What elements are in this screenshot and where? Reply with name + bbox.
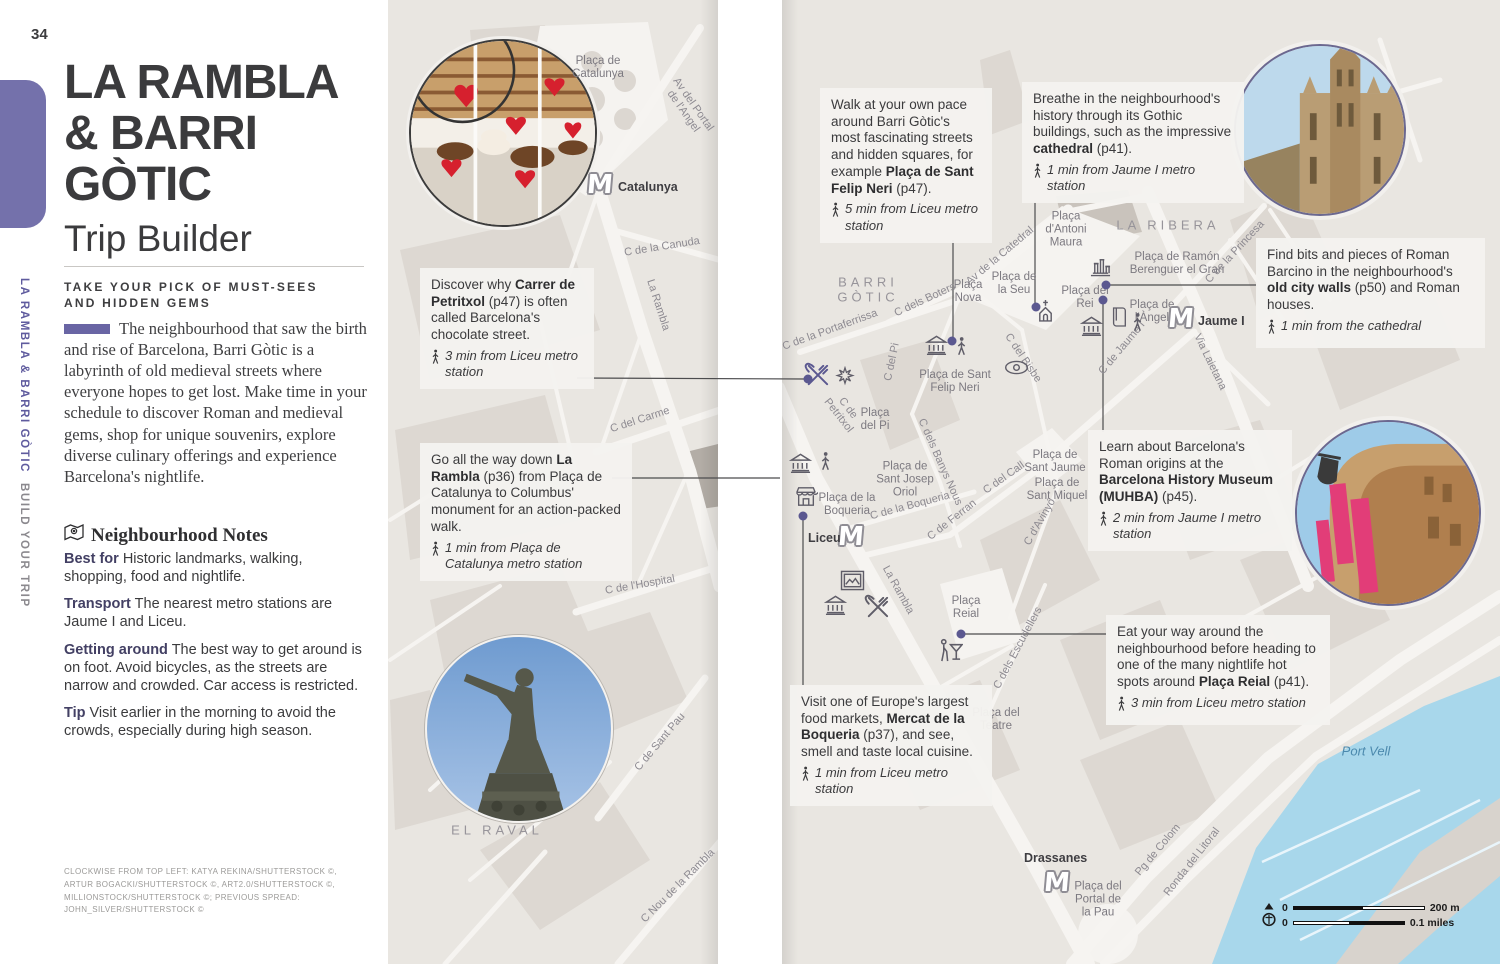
scale-metric-label: 200 m xyxy=(1430,902,1460,914)
museum-icon xyxy=(789,452,812,478)
museum-icon xyxy=(1080,315,1103,341)
note-text: Visit earlier in the morning to avoid th… xyxy=(64,705,336,739)
metro-station-label: Jaume I xyxy=(1198,314,1245,328)
walking-person-icon xyxy=(1033,162,1042,183)
walking-person-icon xyxy=(1117,695,1126,716)
walk-time-note: 3 min from Liceu metro station xyxy=(431,348,583,380)
map-label-place: Plaça de Catalunya xyxy=(572,55,624,81)
photo-credits: Clockwise from top left: Katya Rekina/Sh… xyxy=(64,866,364,917)
walking-person-icon xyxy=(431,348,440,369)
map-label-place: Plaça de la Boqueria xyxy=(819,492,876,518)
metro-logo-drassanes: M xyxy=(1043,870,1071,896)
walker-icon xyxy=(820,451,831,477)
frame-icon xyxy=(840,570,865,596)
callout-boqueria: Visit one of Europe's largest food marke… xyxy=(790,685,992,806)
map-journal-icon xyxy=(64,524,84,547)
scale-imperial-label: 0.1 miles xyxy=(1410,917,1454,929)
callout-placa-reial: Eat your way around the neighbourhood be… xyxy=(1106,615,1330,725)
callout-cathedral: Breathe in the neighbourhood's history t… xyxy=(1022,82,1244,203)
columns-icon xyxy=(1088,256,1113,282)
map-label-place: Plaça d'Antoni Maura xyxy=(1045,211,1086,250)
walker-icon xyxy=(956,336,967,362)
leader-dot xyxy=(1102,281,1111,290)
callout-text: Find bits and pieces of Roman Barcino in… xyxy=(1267,247,1474,314)
map-label-water: Port Vell xyxy=(1342,745,1391,760)
museum-icon xyxy=(925,334,948,360)
callout-text: Walk at your own pace around Barri Gòtic… xyxy=(831,97,981,197)
callout-felip-neri: Walk at your own pace around Barri Gòtic… xyxy=(820,88,992,243)
walking-person-icon xyxy=(831,201,840,222)
spine-vertical-title: LA RAMBLA & BARRI GÒTICBUILD YOUR TRIP xyxy=(18,278,30,608)
callout-la-rambla: Go all the way down La Rambla (p36) from… xyxy=(420,443,632,581)
walk-time-note: 5 min from Liceu metro station xyxy=(831,201,981,233)
spine-subtitle: BUILD YOUR TRIP xyxy=(18,483,30,608)
callout-old-city-walls: Find bits and pieces of Roman Barcino in… xyxy=(1256,238,1485,348)
map-label-place: Plaça de la Seu xyxy=(992,271,1037,297)
walk-time-note: 1 min from Jaume I metro station xyxy=(1033,162,1233,194)
map-label-district: EL RAVAL xyxy=(451,824,543,839)
intro-paragraph: The neighbourhood that saw the birth and… xyxy=(64,318,372,487)
divider xyxy=(64,266,364,267)
spine-title: LA RAMBLA & BARRI GÒTIC xyxy=(18,278,30,473)
north-compass-icon xyxy=(1262,902,1276,934)
metro-logo-liceu: M xyxy=(837,524,865,550)
leader-dot xyxy=(804,375,813,384)
book-icon xyxy=(1110,306,1128,333)
museum-icon xyxy=(824,594,847,620)
note-label: Getting around xyxy=(64,642,168,658)
burst-icon xyxy=(834,366,856,393)
photo-cathedral xyxy=(1234,44,1406,216)
map-label-place: Plaça del Portal de la Pau xyxy=(1074,881,1121,920)
leader-dot xyxy=(1099,296,1108,305)
metro-logo-jaume-i: M xyxy=(1167,306,1195,332)
utensils-icon xyxy=(862,594,891,628)
map-label-district: LA RIBERA xyxy=(1116,219,1219,234)
note-item: Transport The nearest metro stations are… xyxy=(64,595,366,631)
callout-muhba: Learn about Barcelona's Roman origins at… xyxy=(1088,430,1292,551)
callout-text: Eat your way around the neighbourhood be… xyxy=(1117,624,1319,691)
metro-logo-catalunya: M xyxy=(586,172,614,198)
page-number: 34 xyxy=(31,26,48,43)
walking-person-icon xyxy=(1267,318,1276,339)
note-label: Best for xyxy=(64,551,119,567)
note-item: Best for Historic landmarks, walking, sh… xyxy=(64,550,366,586)
callout-text: Discover why Carrer de Petritxol (p47) i… xyxy=(431,277,583,344)
map-label-place: Plaça de Sant Miquel xyxy=(1027,477,1088,503)
walk-time-note: 1 min from Liceu metro station xyxy=(801,765,981,797)
walking-person-icon xyxy=(431,540,440,561)
map-label-place: Plaça de Sant Jaume xyxy=(1024,449,1085,475)
walk-time-note: 2 min from Jaume I metro station xyxy=(1099,510,1281,542)
neighbourhood-notes: Best for Historic landmarks, walking, sh… xyxy=(64,550,366,749)
market-icon xyxy=(794,485,818,512)
map-scalebar: 0 200 m 0 0.1 miles xyxy=(1262,902,1460,934)
leader-dot xyxy=(799,512,808,521)
note-label: Tip xyxy=(64,705,85,721)
leader-dot xyxy=(957,630,966,639)
tagline: TAKE YOUR PICK OF MUST-SEES AND HIDDEN G… xyxy=(64,279,318,311)
accent-chip xyxy=(64,324,110,334)
scale-row-imperial: 0 0.1 miles xyxy=(1282,917,1460,929)
cocktail-icon xyxy=(938,636,963,668)
note-item: Tip Visit earlier in the morning to avoi… xyxy=(64,704,366,740)
leader-dot xyxy=(1032,303,1041,312)
walk-time-note: 3 min from Liceu metro station xyxy=(1117,695,1319,716)
guidebook-spread: 34 LA RAMBLA & BARRI GÒTICBUILD YOUR TRI… xyxy=(0,0,1500,964)
walk-time-note: 1 min from the cathedral xyxy=(1267,318,1474,339)
callout-text: Visit one of Europe's largest food marke… xyxy=(801,694,981,761)
map-label-place: Plaça de Sant Felip Neri xyxy=(919,369,991,395)
callout-carrer-petritxol: Discover why Carrer de Petritxol (p47) i… xyxy=(420,268,594,389)
photo-muhba-roman-walls xyxy=(1295,420,1481,606)
callout-text: Learn about Barcelona's Roman origins at… xyxy=(1099,439,1281,506)
walker-icon xyxy=(1132,312,1143,338)
leader-dot xyxy=(948,337,957,346)
walking-person-icon xyxy=(801,765,810,786)
callout-text: Go all the way down La Rambla (p36) from… xyxy=(431,452,621,536)
scale-row-metric: 0 200 m xyxy=(1282,902,1460,914)
callout-text: Breathe in the neighbourhood's history t… xyxy=(1033,91,1233,158)
chapter-tab xyxy=(0,80,46,228)
page-subtitle: Trip Builder xyxy=(64,218,252,260)
map-label-place: Plaça de Sant Josep Oriol xyxy=(876,461,934,500)
photo-columbus-monument xyxy=(425,635,613,823)
page-title: LA RAMBLA & BARRI GÒTIC xyxy=(64,58,339,211)
walking-person-icon xyxy=(1099,510,1108,531)
eye-icon xyxy=(1004,360,1029,380)
photo-chocolate-shop xyxy=(409,39,597,227)
note-item: Getting around The best way to get aroun… xyxy=(64,641,366,695)
walk-time-note: 1 min from Plaça de Catalunya metro stat… xyxy=(431,540,621,572)
map-label-place: Plaça del Pi xyxy=(861,407,890,433)
notes-heading: Neighbourhood Notes xyxy=(64,524,268,547)
metro-station-label: Drassanes xyxy=(1024,851,1087,865)
note-label: Transport xyxy=(64,596,131,612)
metro-station-label: Catalunya xyxy=(618,180,678,194)
map-label-place: Plaça Reial xyxy=(952,595,981,621)
map-label-district: BARRI GÒTIC xyxy=(837,275,898,304)
metro-station-label: Liceu xyxy=(808,531,841,545)
